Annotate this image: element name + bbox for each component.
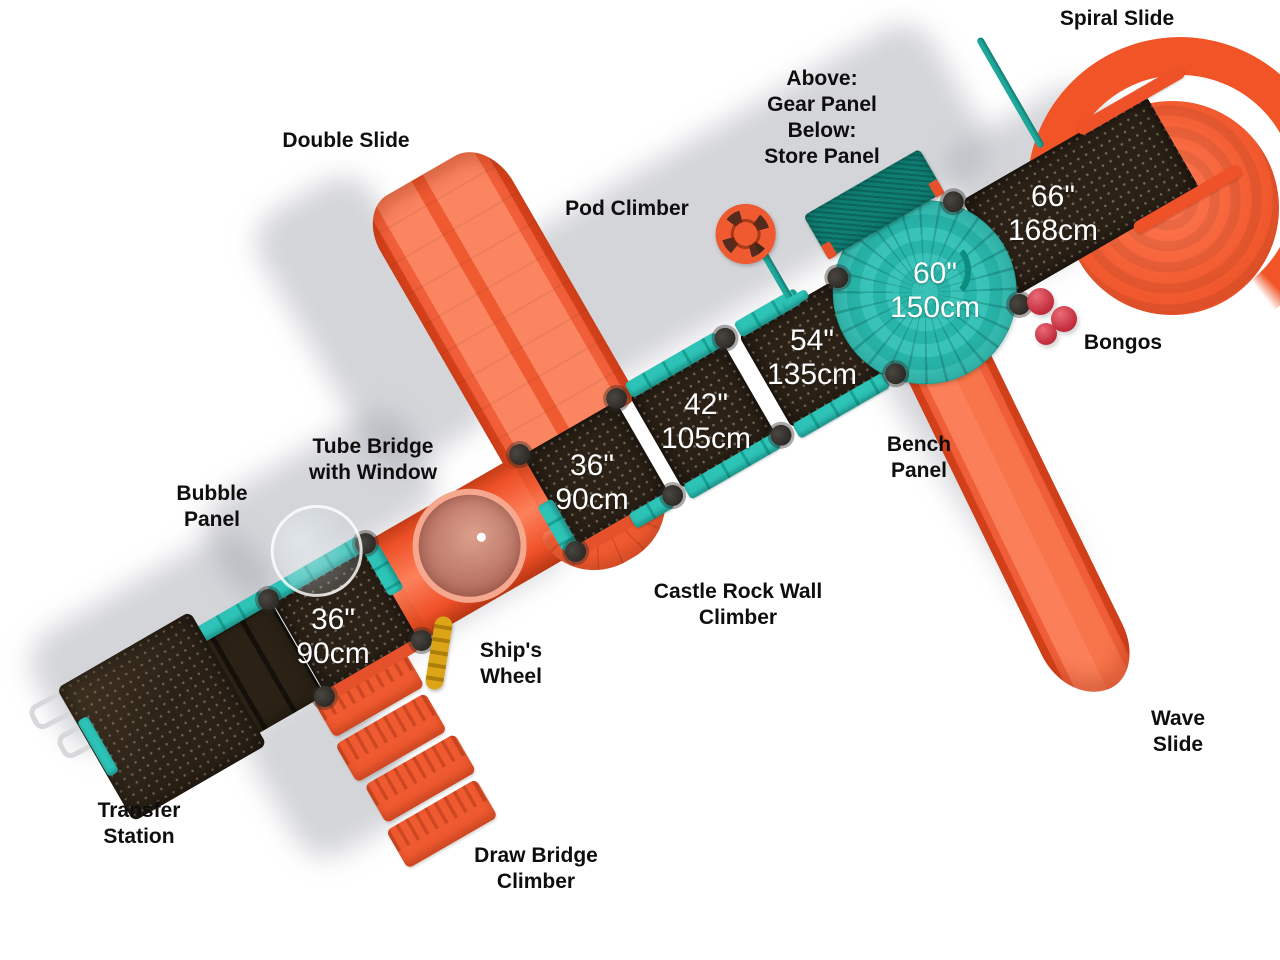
label-ships-wheel: Ship's Wheel <box>480 638 542 690</box>
dim-inches: 36" <box>296 603 369 637</box>
dim-deck-54: 54" 135cm <box>767 324 857 392</box>
label-bongos: Bongos <box>1084 330 1162 356</box>
dim-cm: 105cm <box>661 422 751 456</box>
dim-cm: 168cm <box>1008 214 1098 248</box>
label-castle-rock: Castle Rock Wall Climber <box>654 579 822 631</box>
dim-cm: 90cm <box>555 483 628 517</box>
dim-inches: 54" <box>767 324 857 358</box>
label-tube-bridge: Tube Bridge with Window <box>309 434 437 486</box>
dim-deck-60: 60" 150cm <box>890 257 980 325</box>
label-bubble-panel: Bubble Panel <box>176 481 247 533</box>
dim-deck-42: 42" 105cm <box>661 388 751 456</box>
label-pod-climber: Pod Climber <box>565 196 689 222</box>
label-gear-store-panel: Above: Gear Panel Below: Store Panel <box>764 66 880 170</box>
label-wave-slide: Wave Slide <box>1127 706 1229 758</box>
dim-deck-36-lower: 36" 90cm <box>296 603 369 671</box>
bongo-drum <box>1027 288 1054 315</box>
label-spiral-slide: Spiral Slide <box>1060 6 1174 32</box>
dim-deck-36-upper: 36" 90cm <box>555 449 628 517</box>
dim-deck-66: 66" 168cm <box>1008 180 1098 248</box>
label-bench-panel: Bench Panel <box>887 432 951 484</box>
dim-inches: 36" <box>555 449 628 483</box>
dim-cm: 150cm <box>890 291 980 325</box>
dim-inches: 42" <box>661 388 751 422</box>
dim-cm: 135cm <box>767 358 857 392</box>
bongo-drum <box>1035 323 1057 345</box>
label-double-slide: Double Slide <box>282 128 409 154</box>
label-transfer-station: Transfer Station <box>98 798 181 850</box>
dim-cm: 90cm <box>296 637 369 671</box>
playground-plan-diagram: Spiral Slide Double Slide Above: Gear Pa… <box>0 0 1280 960</box>
dim-inches: 60" <box>890 257 980 291</box>
label-draw-bridge: Draw Bridge Climber <box>474 843 598 895</box>
dim-inches: 66" <box>1008 180 1098 214</box>
